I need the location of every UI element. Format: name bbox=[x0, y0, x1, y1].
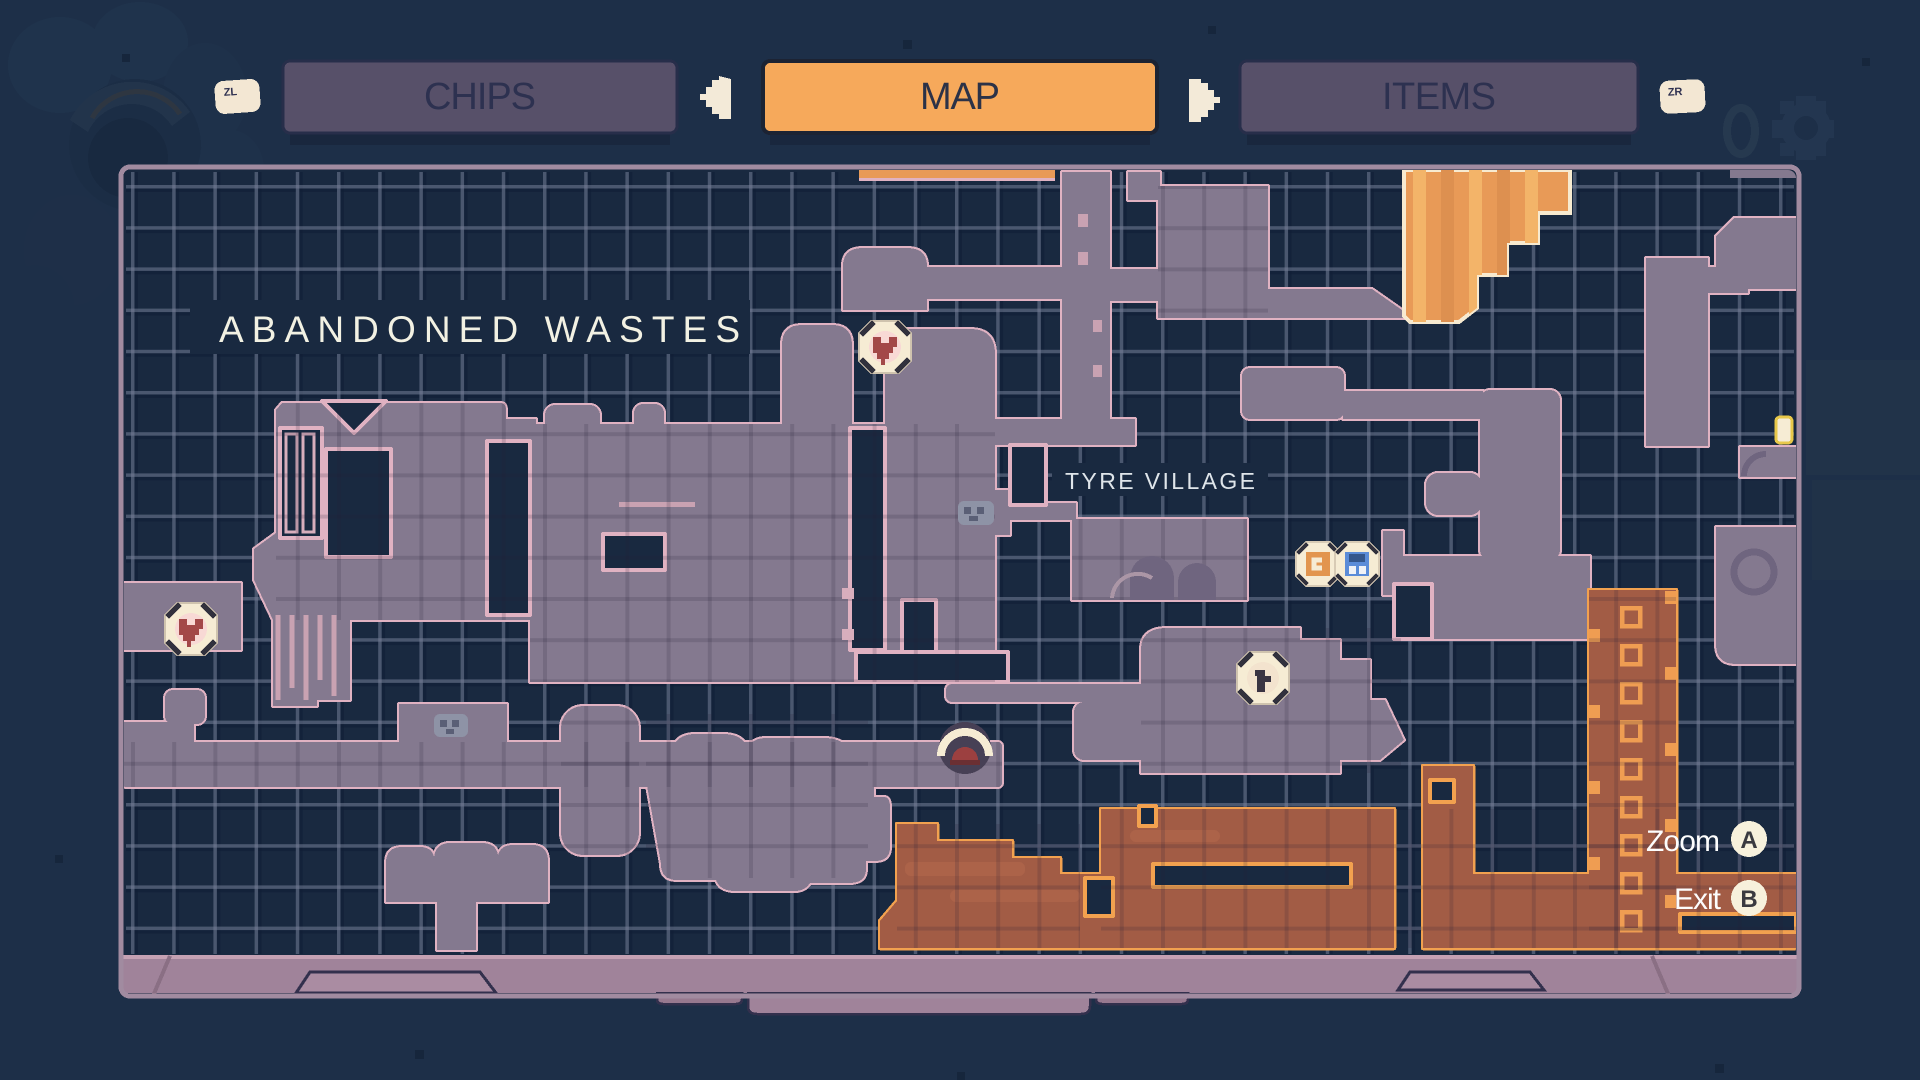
svg-text:TYRE VILLAGE: TYRE VILLAGE bbox=[1065, 468, 1255, 494]
svg-text:ABANDONED WASTES: ABANDONED WASTES bbox=[219, 309, 740, 350]
svg-text:Zoom: Zoom bbox=[1646, 825, 1720, 858]
svg-text:CHIPS: CHIPS bbox=[424, 76, 536, 118]
svg-text:A: A bbox=[1740, 827, 1757, 854]
svg-text:ZL: ZL bbox=[223, 86, 238, 99]
svg-text:MAP: MAP bbox=[920, 76, 1000, 118]
svg-text:ITEMS: ITEMS bbox=[1382, 76, 1496, 118]
svg-text:Exit: Exit bbox=[1674, 883, 1722, 916]
svg-text:B: B bbox=[1740, 886, 1757, 913]
svg-text:ZR: ZR bbox=[1667, 86, 1682, 99]
